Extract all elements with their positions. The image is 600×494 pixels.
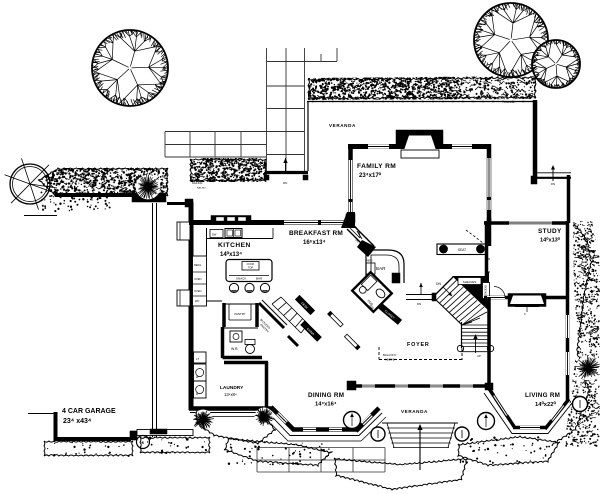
svg-text:DINING RM: DINING RM [308, 392, 344, 399]
svg-text:WC: WC [195, 299, 199, 303]
svg-text:COOK: COOK [247, 262, 255, 266]
svg-text:FOYER: FOYER [407, 342, 430, 348]
svg-text:BOOKS: BOOKS [484, 286, 488, 296]
svg-text:SNACK: SNACK [236, 277, 246, 281]
svg-text:SEAT: SEAT [458, 248, 466, 252]
svg-text:BAR: BAR [376, 266, 386, 271]
svg-text:14⁰x13⁴: 14⁰x13⁴ [220, 251, 242, 258]
svg-text:LAUNDRY: LAUNDRY [220, 385, 244, 391]
svg-text:BAR: BAR [256, 277, 263, 281]
svg-text:16⁵x13⁴: 16⁵x13⁴ [303, 240, 326, 246]
svg-text:TOP: TOP [248, 266, 254, 270]
svg-text:DN: DN [283, 181, 287, 185]
svg-text:D: D [196, 392, 198, 396]
svg-text:13⁴x8⁴: 13⁴x8⁴ [224, 392, 237, 397]
svg-text:W.R.: W.R. [231, 347, 238, 351]
svg-text:BREAKFAST RM: BREAKFAST RM [289, 230, 343, 237]
svg-text:STUDY: STUDY [538, 228, 562, 235]
svg-text:RAILING: RAILING [504, 100, 514, 104]
svg-text:BALCONY: BALCONY [383, 353, 397, 357]
svg-text:23⁴ x43⁴: 23⁴ x43⁴ [63, 418, 92, 425]
svg-text:C: C [524, 312, 526, 316]
svg-text:UP: UP [477, 354, 481, 358]
svg-text:14⁶x16⁴: 14⁶x16⁴ [315, 402, 337, 408]
svg-text:23⁴x17⁰: 23⁴x17⁰ [359, 172, 382, 179]
svg-text:RAILING: RAILING [197, 187, 206, 190]
svg-text:OVEN: OVEN [194, 289, 201, 293]
svg-text:4 CAR GARAGE: 4 CAR GARAGE [62, 408, 116, 415]
svg-text:14⁰x13⁰: 14⁰x13⁰ [540, 237, 561, 244]
svg-text:REFG: REFG [194, 263, 201, 267]
svg-text:DN: DN [417, 302, 421, 306]
svg-text:OVEN: OVEN [194, 277, 201, 281]
svg-text:ABOVE: ABOVE [385, 358, 395, 362]
svg-text:KITCHEN: KITCHEN [218, 242, 251, 249]
svg-text:VERANDA: VERANDA [329, 123, 356, 128]
svg-text:FAMILY RM: FAMILY RM [357, 163, 396, 170]
svg-text:DN: DN [551, 182, 555, 186]
svg-text:RAILING: RAILING [192, 181, 202, 185]
svg-text:SHELVES: SHELVES [463, 280, 477, 284]
svg-text:DW: DW [212, 233, 217, 237]
svg-text:VERANDA: VERANDA [401, 409, 428, 414]
svg-text:DN: DN [436, 282, 441, 286]
svg-text:LT: LT [196, 357, 199, 361]
svg-text:REFG: REFG [366, 260, 373, 263]
svg-text:PANTRY: PANTRY [234, 312, 245, 316]
svg-text:14⁰x22⁰: 14⁰x22⁰ [535, 401, 556, 408]
svg-text:LIVING RM: LIVING RM [525, 392, 560, 399]
